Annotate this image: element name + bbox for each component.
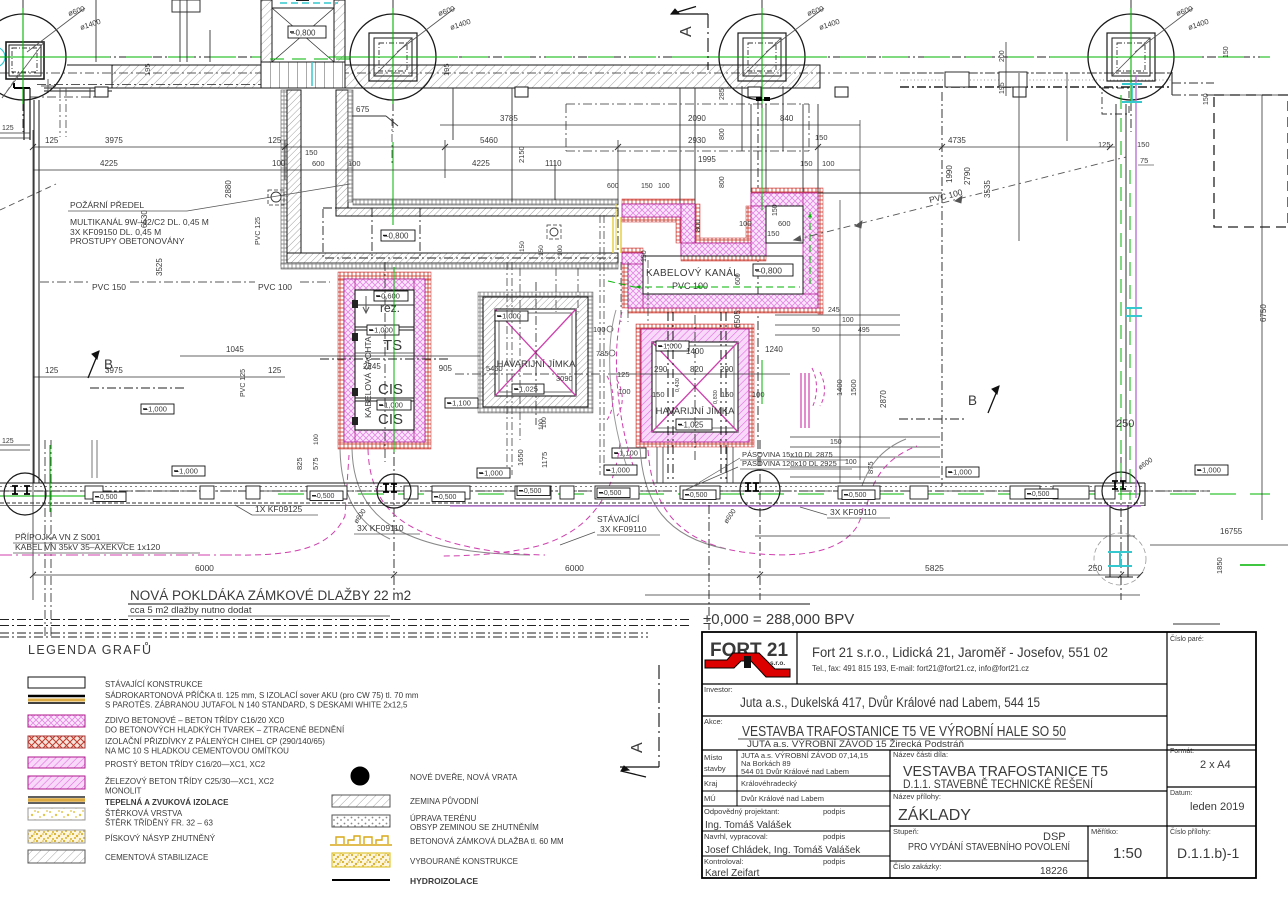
- svg-text:KABELOVÝ KANÁL: KABELOVÝ KANÁL: [646, 266, 739, 279]
- svg-text:–0,500: –0,500: [96, 494, 118, 501]
- svg-text:150: 150: [305, 148, 318, 157]
- svg-text:JUTA a.s. VÝROBNÍ ZÁVOD 15 Žir: JUTA a.s. VÝROBNÍ ZÁVOD 15 Žirecká Podst…: [747, 739, 964, 750]
- svg-text:285: 285: [719, 88, 726, 100]
- svg-text:1175: 1175: [540, 452, 549, 468]
- svg-text:NOVÉ DVEŘE, NOVÁ VRATA: NOVÉ DVEŘE, NOVÁ VRATA: [410, 773, 518, 782]
- svg-text:544 01 Dvůr Králové nad Labem: 544 01 Dvůr Králové nad Labem: [741, 767, 849, 776]
- svg-text:S PAROTĚS. ZÁBRANOU JUTAFOL N: S PAROTĚS. ZÁBRANOU JUTAFOL N 140 STANDA…: [105, 701, 408, 710]
- svg-text:125: 125: [1098, 140, 1111, 149]
- svg-text:675: 675: [356, 105, 370, 114]
- svg-text:3X KF09110: 3X KF09110: [830, 507, 877, 517]
- svg-text:TS: TS: [383, 337, 402, 354]
- svg-text:4225: 4225: [472, 159, 490, 168]
- svg-text:–1,000: –1,000: [380, 401, 403, 410]
- svg-text:2150: 2150: [517, 146, 526, 163]
- svg-text:–0,500: –0,500: [845, 492, 867, 499]
- svg-text:Akce:: Akce:: [704, 717, 723, 726]
- svg-text:PROSTUPY OBETONOVÁNY: PROSTUPY OBETONOVÁNY: [70, 236, 185, 246]
- svg-text:840: 840: [780, 114, 794, 123]
- svg-text:ŠTĚRK TŘÍDĚNÝ FR. 32 – 63: ŠTĚRK TŘÍDĚNÝ FR. 32 – 63: [105, 819, 213, 828]
- svg-text:150: 150: [830, 439, 842, 446]
- svg-text:100: 100: [618, 387, 631, 396]
- svg-text:245: 245: [828, 307, 840, 314]
- svg-text:Karel Zeifart: Karel Zeifart: [705, 868, 760, 879]
- svg-text:–1,000: –1,000: [607, 466, 630, 475]
- svg-text:4735: 4735: [948, 136, 966, 145]
- svg-text:3785: 3785: [500, 114, 518, 123]
- svg-text:125: 125: [2, 125, 14, 132]
- svg-text:800: 800: [693, 219, 702, 232]
- svg-text:B: B: [104, 357, 113, 372]
- svg-text:Tel., fax: 491 815 193, E-mai: Tel., fax: 491 815 193, E-mail: fort21@f…: [812, 663, 1029, 673]
- svg-text:100: 100: [541, 417, 548, 428]
- svg-text:STÁVAJÍCÍ: STÁVAJÍCÍ: [597, 514, 640, 524]
- svg-text:250: 250: [1088, 563, 1102, 573]
- svg-text:Místo: Místo: [704, 753, 722, 762]
- svg-text:575: 575: [311, 457, 320, 470]
- svg-text:–0,800: –0,800: [756, 266, 782, 276]
- svg-text:PVC 100: PVC 100: [672, 281, 708, 291]
- svg-text:1990: 1990: [945, 165, 954, 183]
- svg-text:5460: 5460: [480, 136, 498, 145]
- svg-text:–1,000: –1,000: [370, 326, 393, 335]
- svg-text:–0,800: –0,800: [291, 29, 316, 38]
- svg-text:–0,500: –0,500: [1028, 491, 1050, 498]
- svg-text:Číslo paré:: Číslo paré:: [1170, 634, 1204, 643]
- svg-text:MÚ: MÚ: [704, 794, 716, 803]
- svg-text:600: 600: [735, 273, 742, 285]
- svg-text:150: 150: [815, 133, 828, 142]
- svg-text:PÍSKOVÝ NÁSYP ZHUTNĚNÝ: PÍSKOVÝ NÁSYP ZHUTNĚNÝ: [105, 834, 216, 843]
- svg-text:150: 150: [641, 183, 653, 190]
- svg-text:–0,600: –0,600: [377, 292, 400, 301]
- svg-text:800: 800: [719, 176, 726, 188]
- svg-text:NA MC 10 S HLADKOU CEMENTOVOU: NA MC 10 S HLADKOU CEMENTOVOU OMÍTKOU: [105, 747, 289, 756]
- svg-text:150: 150: [721, 390, 734, 399]
- svg-text:6000: 6000: [195, 563, 214, 573]
- svg-text:Datum:: Datum:: [1170, 790, 1193, 797]
- svg-text:100: 100: [752, 390, 765, 399]
- svg-text:IZOLAČNÍ PŘIZDÍVKY Z PÁLENÝCH: IZOLAČNÍ PŘIZDÍVKY Z PÁLENÝCH CIHEL CP (…: [105, 737, 325, 746]
- svg-text:Číslo přílohy:: Číslo přílohy:: [1170, 827, 1211, 836]
- svg-text:2090: 2090: [688, 114, 706, 123]
- svg-text:600: 600: [607, 183, 619, 190]
- svg-text:150: 150: [1137, 140, 1150, 149]
- svg-text:820: 820: [690, 365, 704, 374]
- svg-text:100: 100: [658, 183, 670, 190]
- svg-text:s.r.o.: s.r.o.: [770, 660, 785, 667]
- svg-text:VESTAVBA TRAFOSTANICE T5 VE VÝ: VESTAVBA TRAFOSTANICE T5 VE VÝROBNÍ HALE…: [742, 723, 1066, 740]
- svg-text:–1,000: –1,000: [1198, 466, 1221, 475]
- svg-text:800: 800: [719, 128, 726, 140]
- svg-text:5825: 5825: [925, 563, 944, 573]
- svg-text:PVC 125: PVC 125: [240, 369, 247, 397]
- svg-text:6505: 6505: [733, 310, 742, 328]
- svg-text:ZÁKLADY: ZÁKLADY: [898, 805, 971, 824]
- svg-text:125: 125: [268, 366, 282, 375]
- svg-text:VESTAVBA TRAFOSTANICE T5: VESTAVBA TRAFOSTANICE T5: [903, 764, 1108, 780]
- svg-text:290: 290: [720, 365, 734, 374]
- svg-text:STÁVAJÍCÍ KONSTRUKCE: STÁVAJÍCÍ KONSTRUKCE: [105, 680, 203, 689]
- svg-text:600: 600: [312, 159, 325, 168]
- svg-text:495: 495: [858, 327, 870, 334]
- svg-text:125: 125: [45, 136, 59, 145]
- svg-text:Odpovědný projektant:: Odpovědný projektant:: [704, 807, 779, 816]
- svg-text:150: 150: [772, 204, 779, 216]
- svg-text:NOVÁ POKLDÁKA ZÁMKOVÉ DLAŽBY: NOVÁ POKLDÁKA ZÁMKOVÉ DLAŽBY 22 m2: [130, 588, 411, 603]
- svg-text:PŘÍPOJKA VN Z S001: PŘÍPOJKA VN Z S001: [15, 532, 101, 542]
- svg-text:PROSTÝ BETON TŘÍDY C16/20—XC1,: PROSTÝ BETON TŘÍDY C16/20—XC1, XC2: [105, 760, 266, 769]
- svg-text:150: 150: [767, 229, 780, 238]
- svg-text:PÁSOVINA 120x10 DL 2925: PÁSOVINA 120x10 DL 2925: [742, 459, 837, 468]
- svg-text:–1,100: –1,100: [448, 399, 471, 408]
- svg-text:CEMENTOVÁ STABILIZACE: CEMENTOVÁ STABILIZACE: [105, 853, 208, 862]
- svg-text:1995: 1995: [698, 155, 716, 164]
- svg-text:150: 150: [652, 390, 665, 399]
- svg-text:–1,000: –1,000: [175, 467, 198, 476]
- svg-text:PVC 100: PVC 100: [258, 282, 292, 292]
- svg-text:DO BETONOVÝCH HLADKÝCH TVAREK: DO BETONOVÝCH HLADKÝCH TVAREK – ZTRACENÉ…: [105, 726, 345, 735]
- svg-text:150: 150: [519, 241, 526, 252]
- svg-text:cca 5 m2 dlažby nutno dodat: cca 5 m2 dlažby nutno dodat: [130, 605, 252, 616]
- svg-text:–1,000: –1,000: [498, 312, 521, 321]
- svg-text:290: 290: [654, 365, 668, 374]
- svg-text:POŽÁRNÍ PŘEDEL: POŽÁRNÍ PŘEDEL: [70, 200, 144, 210]
- svg-text:785: 785: [596, 349, 609, 358]
- svg-text:Fort 21 s.r.o., Lidická 21, Ja: Fort 21 s.r.o., Lidická 21, Jaroměř - Jo…: [812, 644, 1108, 660]
- svg-text:150: 150: [1223, 46, 1230, 58]
- svg-text:125: 125: [2, 438, 14, 445]
- svg-text:–0,800: –0,800: [384, 232, 409, 241]
- svg-text:MONOLIT: MONOLIT: [105, 787, 142, 796]
- svg-text:3090: 3090: [556, 374, 573, 383]
- svg-text:2790: 2790: [963, 167, 972, 185]
- svg-text:ŽELEZOVÝ BETON TŘÍDY C25/30—XC: ŽELEZOVÝ BETON TŘÍDY C25/30—XC1, XC2: [105, 777, 275, 786]
- svg-text:150: 150: [1203, 93, 1210, 105]
- svg-text:–1,000: –1,000: [480, 469, 503, 478]
- svg-text:BETONOVÁ ZÁMKOVÁ DLAŽBA tl. 60: BETONOVÁ ZÁMKOVÁ DLAŽBA tl. 60 MM: [410, 837, 564, 846]
- svg-text:2870: 2870: [879, 390, 888, 408]
- svg-text:Navrhl, vypracoval:: Navrhl, vypracoval:: [704, 832, 768, 841]
- svg-text:–1,000: –1,000: [949, 468, 972, 477]
- svg-text:D.1.1.b)-1: D.1.1.b)-1: [1177, 845, 1239, 861]
- svg-text:PVC 125: PVC 125: [255, 217, 262, 245]
- svg-text:CIS: CIS: [378, 411, 403, 428]
- svg-text:MULTIKANÁL 9W–42/C2 DL. 0,45 M: MULTIKANÁL 9W–42/C2 DL. 0,45 M: [70, 217, 209, 227]
- svg-text:Měřítko:: Měřítko:: [1091, 827, 1118, 836]
- svg-text:SÁDROKARTONOVÁ PŘÍČKA tl. 125: SÁDROKARTONOVÁ PŘÍČKA tl. 125 mm, S IZOL…: [105, 691, 419, 700]
- svg-text:0,830: 0,830: [713, 390, 719, 404]
- svg-text:18226: 18226: [1040, 866, 1068, 877]
- svg-text:1850: 1850: [1215, 557, 1224, 574]
- svg-text:rez.: rez.: [380, 301, 400, 315]
- svg-text:195: 195: [442, 63, 451, 76]
- svg-text:podpis: podpis: [823, 832, 845, 841]
- svg-text:PRO VYDÁNÍ STAVEBNÍHO POVOLENÍ: PRO VYDÁNÍ STAVEBNÍHO POVOLENÍ: [908, 840, 1070, 853]
- svg-text:podpis: podpis: [823, 807, 845, 816]
- svg-text:Ing. Tomáš Valášek: Ing. Tomáš Valášek: [705, 820, 792, 831]
- svg-text:2 x A4: 2 x A4: [1200, 759, 1231, 771]
- svg-text:–0,500: –0,500: [313, 493, 335, 500]
- svg-text:D.1.1. STAVEBNĚ TECHNICKÉ ŘEŠE: D.1.1. STAVEBNĚ TECHNICKÉ ŘEŠENÍ: [903, 778, 1094, 791]
- svg-text:100: 100: [348, 159, 361, 168]
- svg-text:150: 150: [641, 250, 648, 262]
- svg-text:CIS: CIS: [378, 381, 403, 398]
- svg-text:Kraj: Kraj: [704, 779, 718, 788]
- svg-text:0,430: 0,430: [675, 378, 681, 392]
- svg-text:Kontroloval:: Kontroloval:: [704, 857, 744, 866]
- svg-text:3975: 3975: [105, 136, 123, 145]
- svg-text:Číslo zakázky:: Číslo zakázky:: [893, 862, 941, 871]
- svg-text:A: A: [678, 26, 695, 37]
- svg-text:1045: 1045: [226, 345, 244, 354]
- svg-text:VYBOURANÉ KONSTRUKCE: VYBOURANÉ KONSTRUKCE: [410, 857, 518, 866]
- svg-text:100: 100: [272, 159, 286, 168]
- svg-text:2930: 2930: [688, 136, 706, 145]
- svg-text:Juta a.s., Dukelská 417, Dvůr: Juta a.s., Dukelská 417, Dvůr Králové na…: [740, 695, 1040, 710]
- svg-text:ÚPRAVA TERÉNU: ÚPRAVA TERÉNU: [410, 814, 476, 823]
- svg-text:100: 100: [822, 159, 835, 168]
- svg-text:TEPELNÁ A ZVUKOVÁ IZOLACE: TEPELNÁ A ZVUKOVÁ IZOLACE: [105, 798, 229, 807]
- svg-text:6000: 6000: [565, 563, 584, 573]
- svg-text:–0,500: –0,500: [520, 488, 542, 495]
- svg-text:stavby: stavby: [704, 764, 726, 773]
- svg-text:50: 50: [812, 327, 820, 334]
- svg-text:Název přílohy:: Název přílohy:: [893, 792, 941, 801]
- svg-text:OBSYP ZEMINOU SE ZHUTNĚNÍM: OBSYP ZEMINOU SE ZHUTNĚNÍM: [410, 823, 539, 832]
- svg-text:16755: 16755: [1220, 527, 1243, 536]
- svg-text:3X KF09110: 3X KF09110: [600, 524, 647, 534]
- svg-text:100: 100: [842, 317, 854, 324]
- svg-text:1400: 1400: [835, 379, 844, 396]
- svg-text:Název části díla:: Název části díla:: [893, 750, 948, 759]
- svg-text:2880: 2880: [224, 180, 233, 198]
- svg-text:–1,000: –1,000: [659, 342, 682, 351]
- svg-text:Investor:: Investor:: [704, 685, 733, 694]
- svg-text:PÁSOVINA 15x10 DL 2875: PÁSOVINA 15x10 DL 2875: [742, 450, 833, 459]
- svg-text:150: 150: [800, 159, 813, 168]
- svg-text:±0,000 = 288,000 BPV: ±0,000 = 288,000 BPV: [703, 611, 854, 628]
- svg-text:75: 75: [1140, 156, 1148, 165]
- svg-text:1X KF09125: 1X KF09125: [255, 504, 303, 514]
- svg-text:KABELOVÁ ŠACHTA: KABELOVÁ ŠACHTA: [363, 336, 373, 418]
- svg-text:100: 100: [557, 245, 564, 256]
- svg-text:4225: 4225: [100, 159, 118, 168]
- svg-text:125: 125: [45, 366, 59, 375]
- svg-text:ZEMINA PŮVODNÍ: ZEMINA PŮVODNÍ: [410, 797, 479, 806]
- svg-text:A: A: [629, 742, 646, 753]
- svg-text:1500: 1500: [849, 379, 858, 396]
- svg-text:195: 195: [999, 82, 1006, 94]
- svg-text:leden 2019: leden 2019: [1190, 801, 1244, 813]
- svg-text:1240: 1240: [765, 345, 783, 354]
- svg-text:1650: 1650: [516, 449, 525, 466]
- svg-text:195: 195: [143, 63, 152, 76]
- svg-text:LEGENDA GRAFŮ: LEGENDA GRAFŮ: [28, 642, 152, 657]
- svg-text:200: 200: [999, 50, 1006, 62]
- svg-text:PVC 150: PVC 150: [92, 282, 126, 292]
- svg-text:125: 125: [617, 370, 630, 379]
- svg-text:1:50: 1:50: [1113, 845, 1142, 862]
- svg-text:B: B: [968, 393, 977, 408]
- svg-text:100: 100: [313, 434, 320, 445]
- svg-text:–0,500: –0,500: [686, 492, 708, 499]
- svg-text:–1,025: –1,025: [515, 385, 538, 394]
- svg-text:ZDIVO BETONOVÉ – BETON TŘÍDY C: ZDIVO BETONOVÉ – BETON TŘÍDY C16/20 XC0: [105, 716, 285, 725]
- svg-text:Stupeň:: Stupeň:: [893, 827, 919, 836]
- svg-text:3525: 3525: [155, 258, 164, 276]
- svg-text:100: 100: [739, 219, 752, 228]
- svg-text:–0,500: –0,500: [435, 494, 457, 501]
- svg-text:905: 905: [439, 364, 453, 373]
- svg-text:–0,500: –0,500: [600, 490, 622, 497]
- svg-text:HYDROIZOLACE: HYDROIZOLACE: [410, 876, 478, 886]
- svg-text:Dvůr Králové nad Labem: Dvůr Králové nad Labem: [741, 794, 824, 803]
- svg-text:3535: 3535: [983, 180, 992, 198]
- svg-text:–1,025: –1,025: [679, 421, 704, 430]
- svg-text:podpis: podpis: [823, 857, 845, 866]
- svg-text:250: 250: [1116, 418, 1134, 430]
- svg-text:3X KF09110: 3X KF09110: [357, 523, 404, 533]
- svg-text:150: 150: [538, 245, 545, 256]
- svg-text:6750: 6750: [1259, 304, 1268, 322]
- svg-text:1110: 1110: [545, 159, 562, 168]
- svg-text:125: 125: [268, 136, 282, 145]
- svg-text:Josef Chládek, Ing. Tomáš Valá: Josef Chládek, Ing. Tomáš Valášek: [705, 845, 861, 856]
- svg-text:Formát:: Formát:: [1170, 748, 1194, 755]
- svg-text:825: 825: [295, 457, 304, 470]
- svg-text:–1,000: –1,000: [144, 405, 167, 414]
- svg-text:600: 600: [778, 219, 791, 228]
- svg-text:ŠTĚRKOVÁ VRSTVA: ŠTĚRKOVÁ VRSTVA: [105, 809, 183, 818]
- svg-text:Královéhradecký: Královéhradecký: [741, 779, 797, 788]
- svg-text:KABEL VN 35kV 35–AXEKVCE 1x120: KABEL VN 35kV 35–AXEKVCE 1x120: [15, 542, 160, 552]
- svg-text:5460: 5460: [486, 364, 503, 373]
